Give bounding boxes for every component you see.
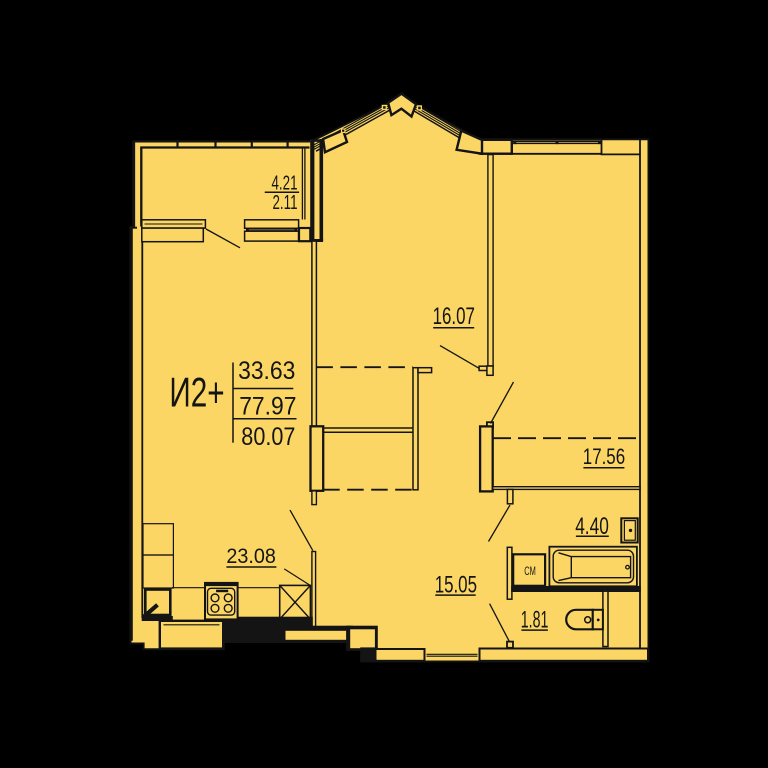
svg-text:16.07: 16.07 xyxy=(433,304,475,330)
svg-text:33.63: 33.63 xyxy=(238,358,295,385)
svg-text:И2+: И2+ xyxy=(169,368,224,415)
svg-text:23.08: 23.08 xyxy=(226,545,276,568)
svg-text:17.56: 17.56 xyxy=(583,444,625,469)
svg-text:СМ: СМ xyxy=(524,564,536,578)
svg-text:77.97: 77.97 xyxy=(239,394,296,421)
svg-text:80.07: 80.07 xyxy=(241,424,295,451)
svg-text:2.11: 2.11 xyxy=(273,192,298,214)
svg-text:1.81: 1.81 xyxy=(521,606,549,633)
